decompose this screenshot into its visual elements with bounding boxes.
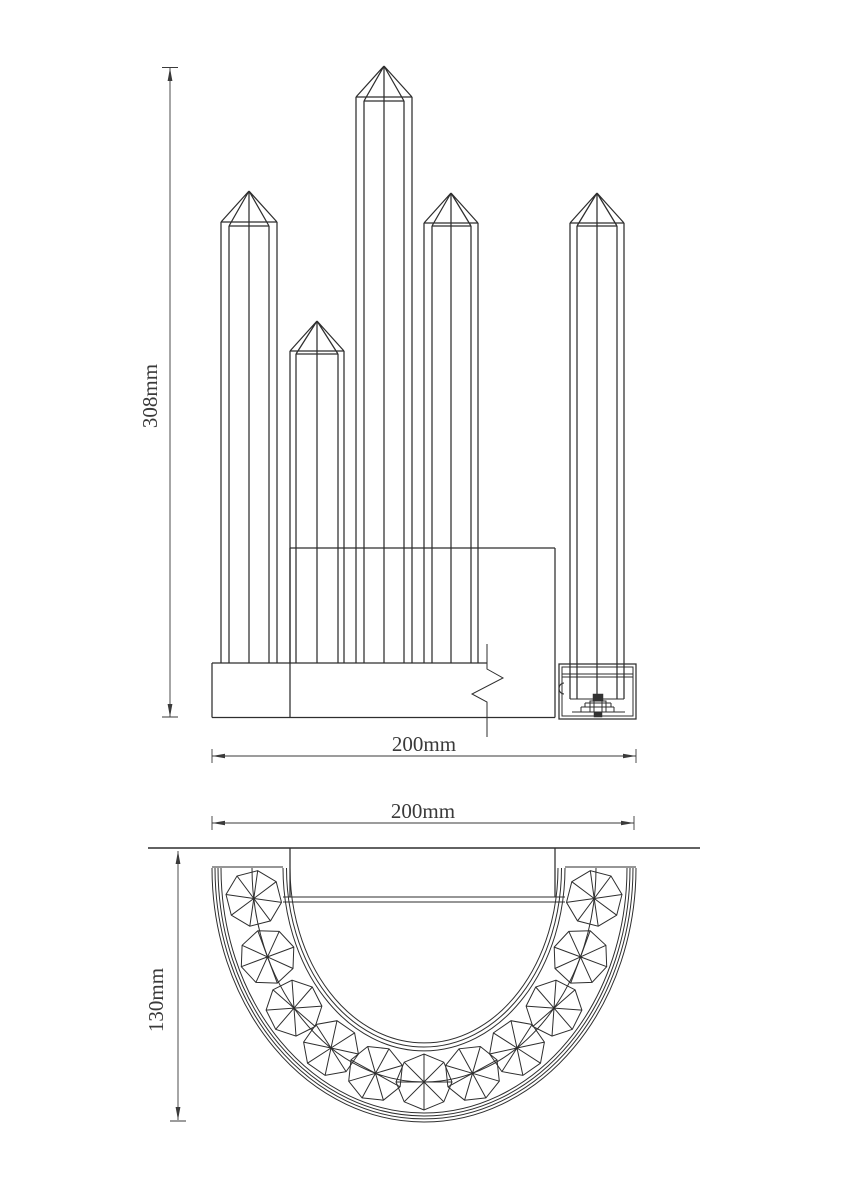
arrow-down-icon: [168, 704, 173, 717]
depth-dim-label: 130mm: [144, 968, 168, 1032]
screw-shaft: [594, 712, 602, 717]
dimension-height: 308mm: [138, 68, 178, 718]
back-plate-bottom-outline: [290, 848, 555, 897]
height-dim-label: 308mm: [138, 364, 162, 428]
break-line: [472, 644, 503, 737]
crystal-rods-group: [221, 66, 624, 699]
crystal-facet-2: [241, 931, 293, 983]
crystal-facet-1: [226, 871, 282, 927]
bottom-view: 200mm 130mm: [144, 799, 700, 1122]
crystal-facet-7: [446, 1047, 500, 1101]
crystal-facets-group: [226, 871, 622, 1110]
front-view: 308mm 200mm: [138, 66, 636, 763]
crystal-facet-5: [349, 1047, 403, 1101]
crystal-facet-10: [554, 931, 607, 983]
crystal-rod-3: [356, 66, 412, 663]
crystal-rod-2: [290, 321, 344, 663]
dimension-depth-line: [170, 851, 186, 1121]
arrow-right-icon: [621, 821, 634, 826]
ring-inner-arc-1: [283, 868, 565, 1051]
screw-head: [593, 694, 603, 701]
crystal-facet-6: [396, 1054, 452, 1110]
crystal-rod-5: [570, 193, 624, 699]
arrow-left-icon: [212, 821, 225, 826]
crystal-facet-11: [567, 871, 623, 927]
dimension-height-line: [162, 68, 178, 718]
dimension-depth: 130mm: [144, 851, 186, 1121]
dimension-width-front: 200mm: [212, 732, 636, 763]
arrow-up-icon: [168, 68, 173, 81]
mount-bracket: [572, 703, 625, 712]
crystal-facet-9: [526, 980, 582, 1036]
drawing-sheet: 308mm 200mm 200mm: [0, 0, 849, 1200]
base-front: [212, 663, 555, 718]
dimension-width-bottom: 200mm: [212, 799, 634, 830]
back-plate-front: [290, 548, 555, 718]
arrow-down-icon: [176, 1107, 181, 1120]
technical-drawing-canvas: 308mm 200mm 200mm: [0, 0, 849, 1200]
arrow-right-icon: [623, 754, 636, 759]
crystal-rod-4: [424, 193, 478, 663]
arrow-left-icon: [212, 754, 225, 759]
arrow-up-icon: [176, 851, 181, 864]
ring-center-arc: [252, 868, 596, 1082]
crystal-rod-1: [221, 191, 277, 663]
ring-inner-arc-3: [290, 868, 558, 1043]
back-plate-bottom: [283, 848, 565, 902]
ring-inner-arc-2: [287, 868, 562, 1047]
width-dim-bottom-label: 200mm: [391, 799, 455, 823]
back-plate-bottom-edge: [283, 897, 565, 902]
width-dim-front-label: 200mm: [392, 732, 456, 756]
